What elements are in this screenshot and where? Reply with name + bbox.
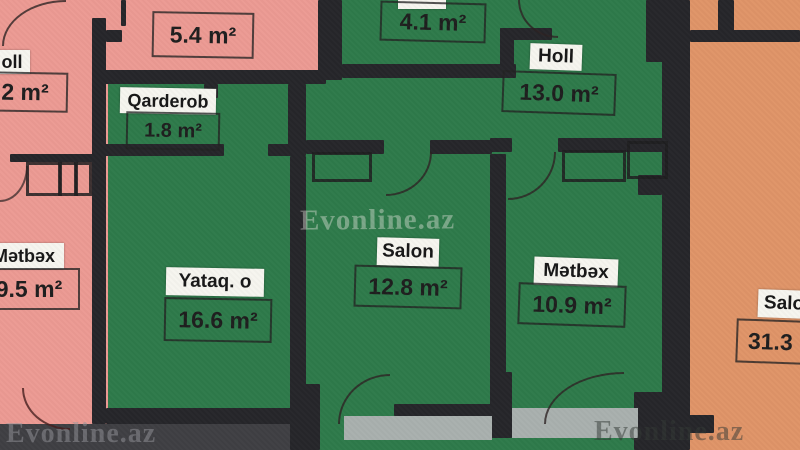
wall-salon-bottom [394, 404, 492, 416]
area-qarderob: 1.8 m² [126, 111, 221, 151]
cabinet-holl-2 [627, 141, 668, 179]
door-arc-salon [386, 152, 432, 196]
door-leaf-pink-top [121, 0, 126, 26]
area-pink-top-room: 5.4 m² [152, 11, 255, 59]
cabinet-holl-1 [562, 150, 626, 182]
door-arc-yataq-balcony [338, 374, 390, 424]
wall-right-boundary [662, 40, 690, 450]
area-holl: 13.0 m² [501, 70, 616, 116]
room-label-left-holl: oll [0, 50, 30, 74]
watermark-bottom-right: Evonline.az [594, 416, 744, 448]
room-label-left-metbex: Mətbəx [0, 243, 64, 269]
wall-balcony-pier-1 [290, 384, 320, 450]
wall-left-step [106, 30, 122, 42]
door-arc-metbex [508, 152, 556, 200]
area-left-metbex: 9.5 m² [0, 268, 80, 310]
wall-metbex-top-a [490, 138, 512, 152]
cabinet-pink-3 [74, 162, 92, 196]
room-label-salon: Salon [377, 237, 440, 267]
wall-small-room-bottom [342, 64, 516, 78]
area-salon: 12.8 m² [353, 265, 462, 310]
wall-pink-room-right [318, 0, 342, 80]
wall-salon-metbex [490, 154, 506, 374]
room-label-holl: Holl [530, 43, 583, 71]
wall-balcony-pier-2 [490, 372, 512, 438]
area-metbex: 10.9 m² [517, 282, 626, 328]
room-label-right-salon: Salo [758, 289, 800, 319]
area-right-salon: 31.3 [735, 318, 800, 365]
wall-yataq-salon [290, 156, 306, 408]
watermark-bottom-left: Evonline.az [6, 418, 156, 450]
neighbor-apartment-orange-right [688, 0, 800, 450]
cabinet-pink-1 [26, 162, 62, 196]
cabinet-salon-top [312, 152, 372, 182]
watermark-center: Evonline.az [300, 203, 456, 237]
wall-under-pink-room [92, 70, 326, 84]
area-small-room: 4.1 m² [379, 1, 486, 44]
wall-qarderob-right [288, 84, 306, 156]
room-label-yataq: Yataq. o [166, 267, 264, 297]
wall-pink-counter [10, 154, 100, 162]
wall-orange-notch [718, 0, 734, 34]
floor-plan: oll Qarderob Holl Mətbəx Yataq. o Salon … [0, 0, 800, 450]
wall-salon-top-b [430, 140, 492, 154]
area-left-holl: 2 m² [0, 71, 68, 112]
wall-qarderob-bottom-b [268, 144, 290, 156]
area-yataq: 16.6 m² [164, 297, 273, 343]
wall-orange-top [690, 30, 800, 42]
